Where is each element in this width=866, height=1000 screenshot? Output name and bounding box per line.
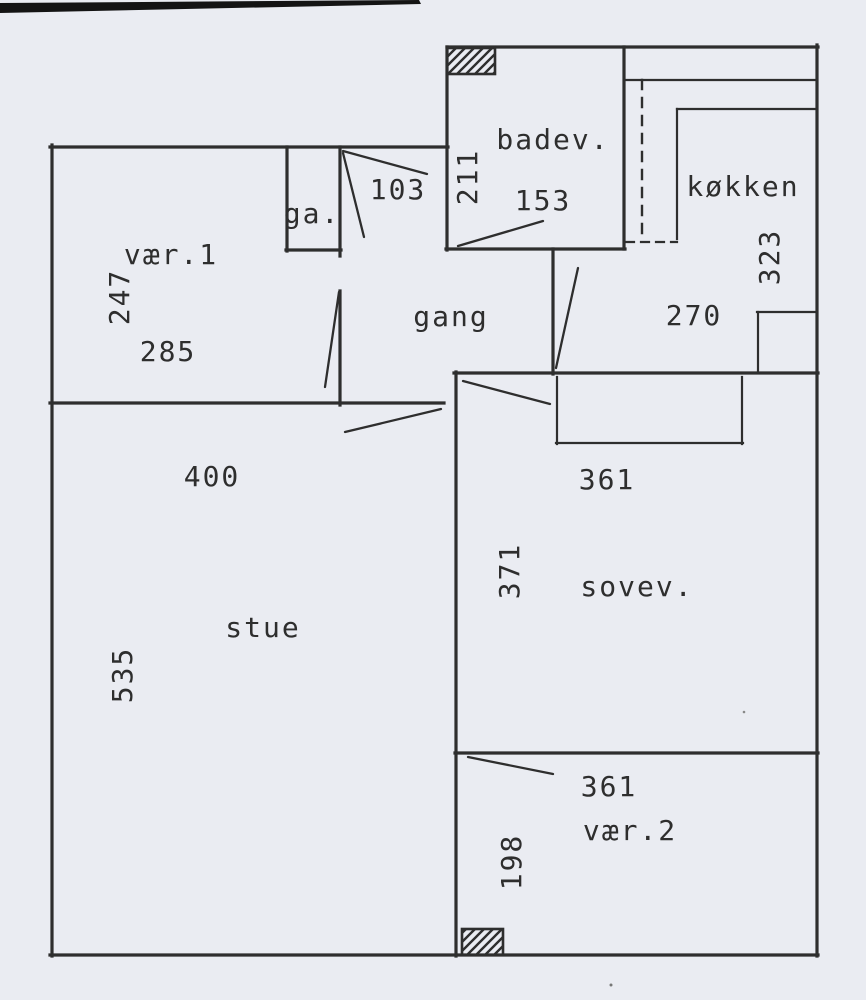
room-label-sovev: sovev. — [580, 573, 693, 601]
dim-vaer2-width: 361 — [581, 773, 638, 801]
room-label-vaer2: vær.2 — [583, 817, 677, 845]
scan-speck — [610, 984, 613, 987]
door-leaf-garderobe — [343, 153, 364, 237]
dim-badev-height: 211 — [454, 149, 482, 206]
dim-badev-door: 153 — [515, 187, 572, 215]
door-leaf-stue — [345, 409, 441, 432]
room-label-stue: stue — [225, 614, 300, 642]
door-leaf-vaer1 — [325, 292, 339, 387]
floor-plan-drawing — [0, 0, 866, 1000]
room-label-gang: gang — [413, 303, 488, 331]
dim-vaer1-width: 285 — [140, 338, 197, 366]
room-label-garderobe: ga. — [284, 200, 341, 228]
dim-vaer2-height: 198 — [498, 834, 526, 891]
leader-line-103 — [343, 151, 427, 174]
door-swing-badev — [458, 221, 543, 246]
dim-gang-width: 270 — [666, 302, 723, 330]
scan-edge-artifact — [0, 0, 421, 13]
door-leaf-sovev — [463, 381, 550, 404]
room-label-koekken: køkken — [686, 173, 799, 201]
floor-plan-page: vær.1 247 285 ga. 103 badev. 211 153 køk… — [0, 0, 866, 1000]
room-label-badev: badev. — [496, 126, 609, 154]
dim-sovev-height: 371 — [496, 543, 524, 600]
dim-stue-height: 535 — [109, 647, 137, 704]
scan-speck — [743, 711, 746, 714]
dim-sovev-width: 361 — [579, 466, 636, 494]
dim-stue-width: 400 — [184, 463, 241, 491]
door-leaf-corridor — [556, 268, 578, 368]
shaft-hatch-bottom — [462, 929, 503, 955]
room-label-vaer1: vær.1 — [124, 241, 218, 269]
door-leaf-vaer2 — [468, 757, 553, 774]
dim-koekken-height: 323 — [756, 229, 784, 286]
shaft-hatch-top — [447, 48, 495, 74]
dim-gang-door: 103 — [370, 176, 427, 204]
dim-vaer1-height: 247 — [106, 269, 134, 326]
